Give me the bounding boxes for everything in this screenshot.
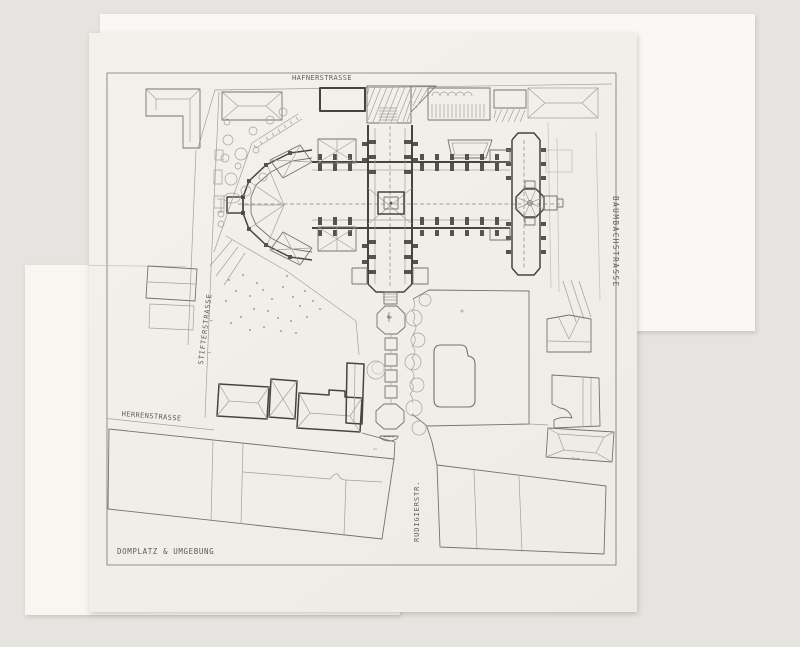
top-building-row <box>146 86 598 172</box>
arcade-building <box>428 88 490 120</box>
plaza-tree-dots <box>225 274 321 334</box>
photo-background: { "document": { "title": "DOMPLATZ & UMG… <box>0 0 800 647</box>
plan-border <box>89 73 616 565</box>
east-garden <box>410 290 548 426</box>
hatched-complex <box>367 86 436 123</box>
plan-title: DOMPLATZ & UMGEBUNG <box>117 547 214 556</box>
cathedral-plan <box>217 125 563 300</box>
axis-path-octagons <box>373 292 405 449</box>
northwest-garden <box>214 108 302 252</box>
street-label-hafnerstrasse: HAFNERSTRASSE <box>292 74 352 82</box>
south-blocks <box>108 266 606 554</box>
street-label-rudigierstrasse: RUDIGIERSTR. <box>413 481 421 542</box>
site-plan-drawing <box>89 33 637 612</box>
street-label-baumbachstrasse: BAUMBACHSTRASSE <box>611 196 620 288</box>
baumbach-buildings <box>546 280 614 462</box>
